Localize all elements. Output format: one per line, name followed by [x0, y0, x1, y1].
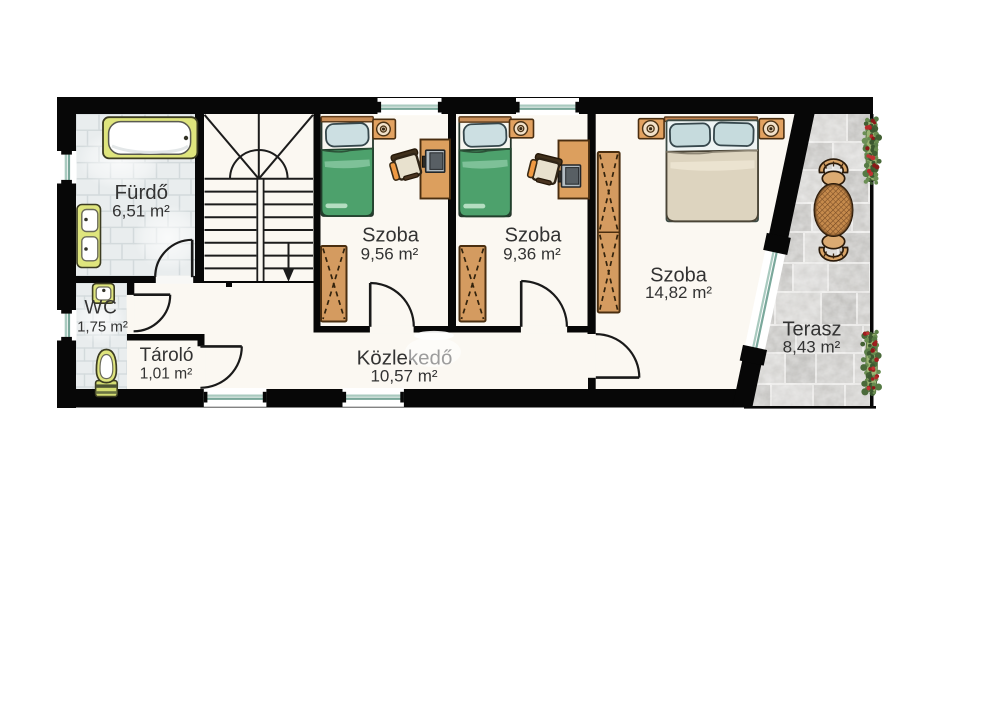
- svg-text:WC: WC: [84, 298, 117, 319]
- svg-text:6,51 m²: 6,51 m²: [112, 202, 170, 221]
- svg-text:Szoba: Szoba: [505, 225, 563, 247]
- svg-text:Szoba: Szoba: [362, 225, 420, 247]
- svg-text:9,36 m²: 9,36 m²: [503, 245, 561, 264]
- svg-text:9,56 m²: 9,56 m²: [361, 245, 419, 264]
- svg-text:1,75 m²: 1,75 m²: [77, 319, 128, 336]
- svg-text:1,01 m²: 1,01 m²: [140, 366, 193, 383]
- svg-text:14,82 m²: 14,82 m²: [645, 283, 712, 302]
- svg-text:8,43 m²: 8,43 m²: [783, 338, 841, 357]
- svg-text:10,57 m²: 10,57 m²: [370, 367, 437, 386]
- svg-text:Tároló: Tároló: [140, 345, 194, 366]
